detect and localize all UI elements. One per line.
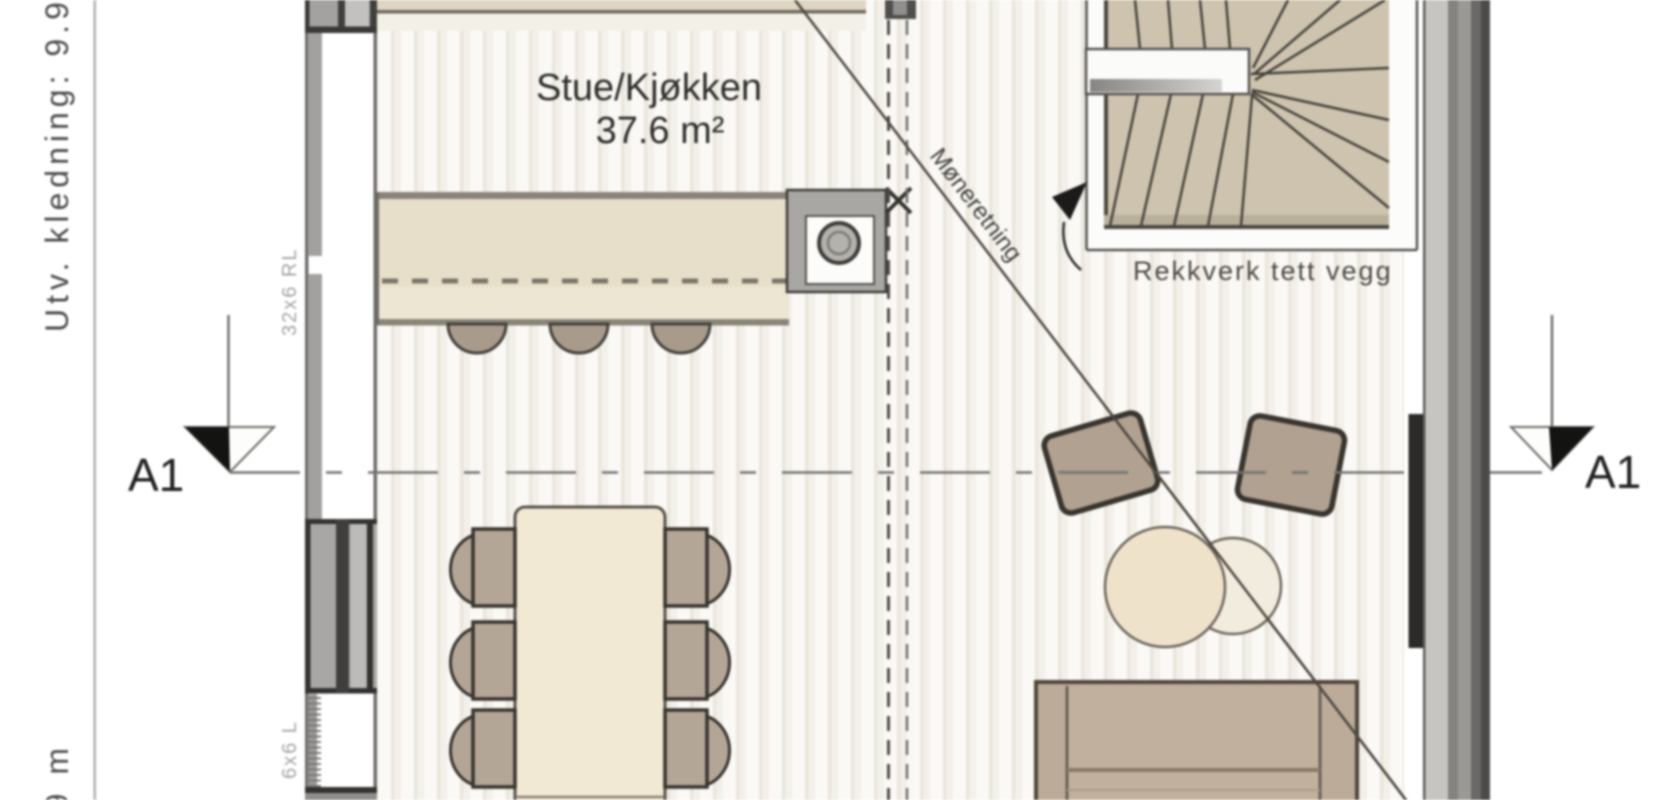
svg-text:32x6 RL: 32x6 RL	[279, 248, 301, 337]
svg-text:Utv. kledning: 9.9 m: Utv. kledning: 9.9 m	[39, 0, 75, 332]
svg-text:6x6 L: 6x6 L	[279, 720, 301, 779]
svg-text:A1: A1	[128, 449, 184, 501]
svg-text:Rekkverk tett vegg: Rekkverk tett vegg	[1133, 256, 1393, 286]
svg-text:A1: A1	[1585, 446, 1641, 498]
svg-text:9.9 m: 9.9 m	[39, 743, 75, 800]
svg-text:Stue/Kjøkken: Stue/Kjøkken	[536, 67, 762, 109]
svg-text:37.6 m²: 37.6 m²	[596, 110, 725, 152]
